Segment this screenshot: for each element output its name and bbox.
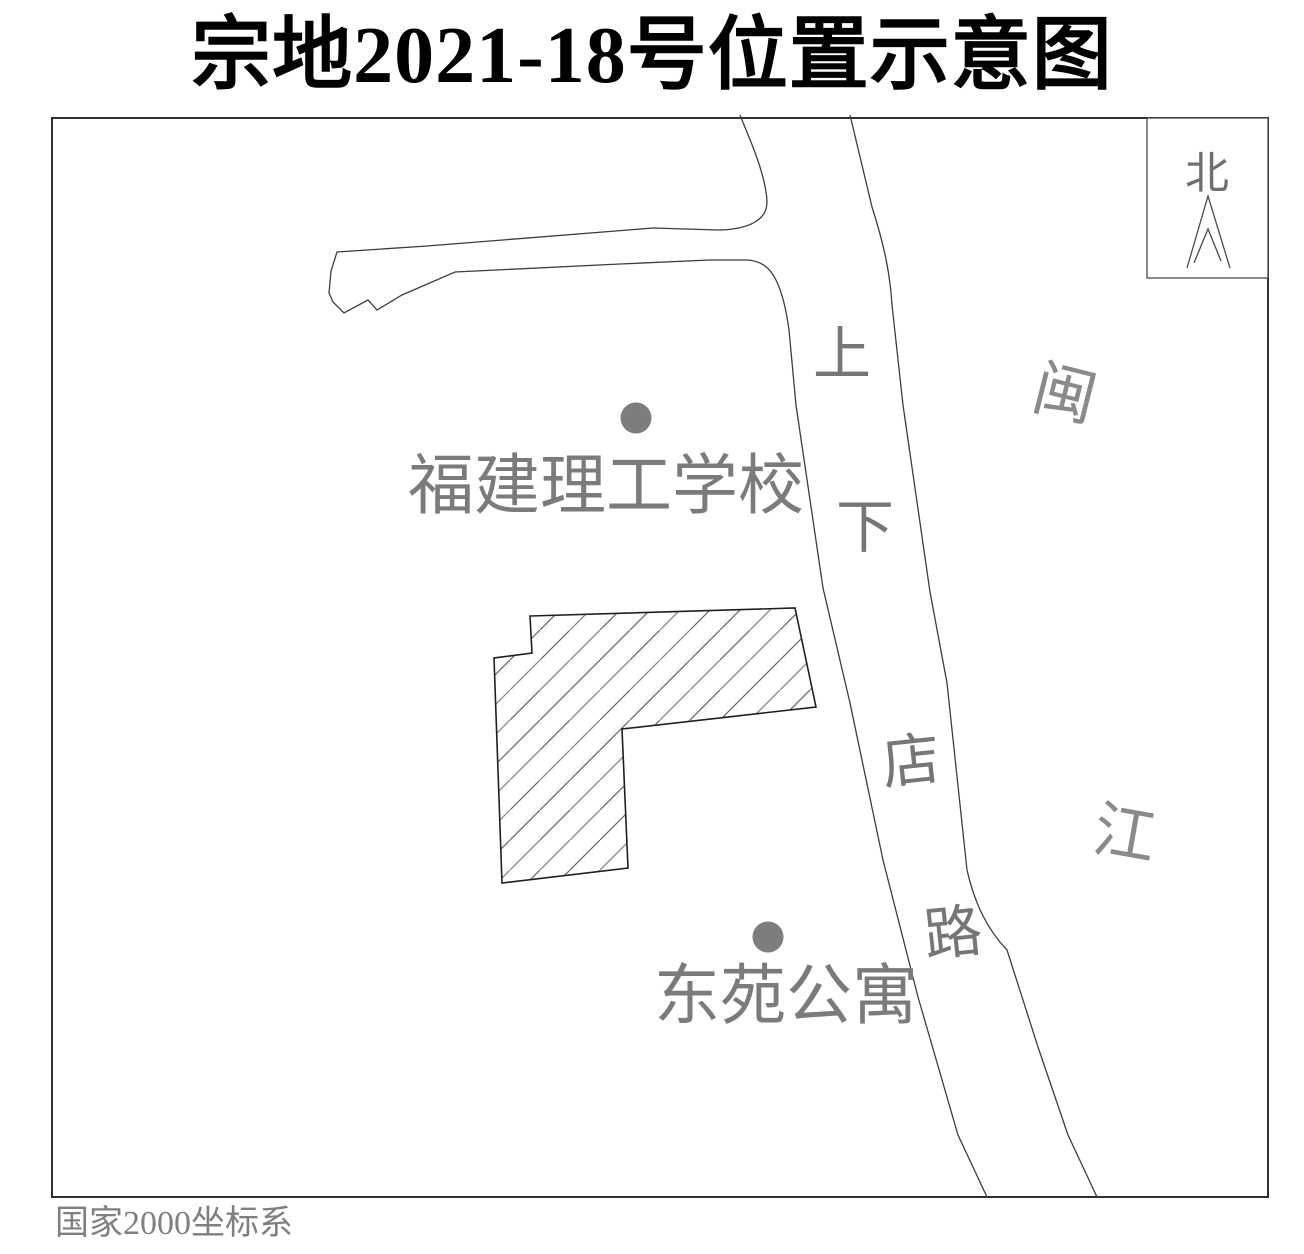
road-east-edge	[850, 115, 1097, 1197]
coordinate-system-note: 国家2000坐标系	[55, 1204, 293, 1242]
poi-dot-school	[621, 403, 652, 434]
poi-label-apartment: 东苑公寓	[654, 960, 918, 1033]
river-name-char-1: 闽	[1026, 354, 1103, 435]
parcel-polygon	[494, 608, 816, 883]
road-name-char-3: 店	[879, 726, 943, 797]
map-canvas: 福建理工学校 东苑公寓 上 下 店 路 闽 江 北 国家2000坐标系	[0, 0, 1304, 1254]
road-name-char-1: 上	[813, 322, 871, 387]
road-name-char-4: 路	[921, 898, 985, 969]
north-label: 北	[1185, 149, 1229, 198]
poi-dot-apartment	[753, 922, 784, 953]
poi-label-school: 福建理工学校	[408, 450, 804, 523]
parcel-outline	[494, 608, 816, 883]
river-name-char-2: 江	[1088, 796, 1161, 874]
north-indicator: 北	[1147, 118, 1268, 278]
parcel-location-map-page: 宗地2021-18号位置示意图 福建理工学校 东苑公寓	[0, 0, 1304, 1254]
road-name-char-2: 下	[836, 495, 894, 560]
